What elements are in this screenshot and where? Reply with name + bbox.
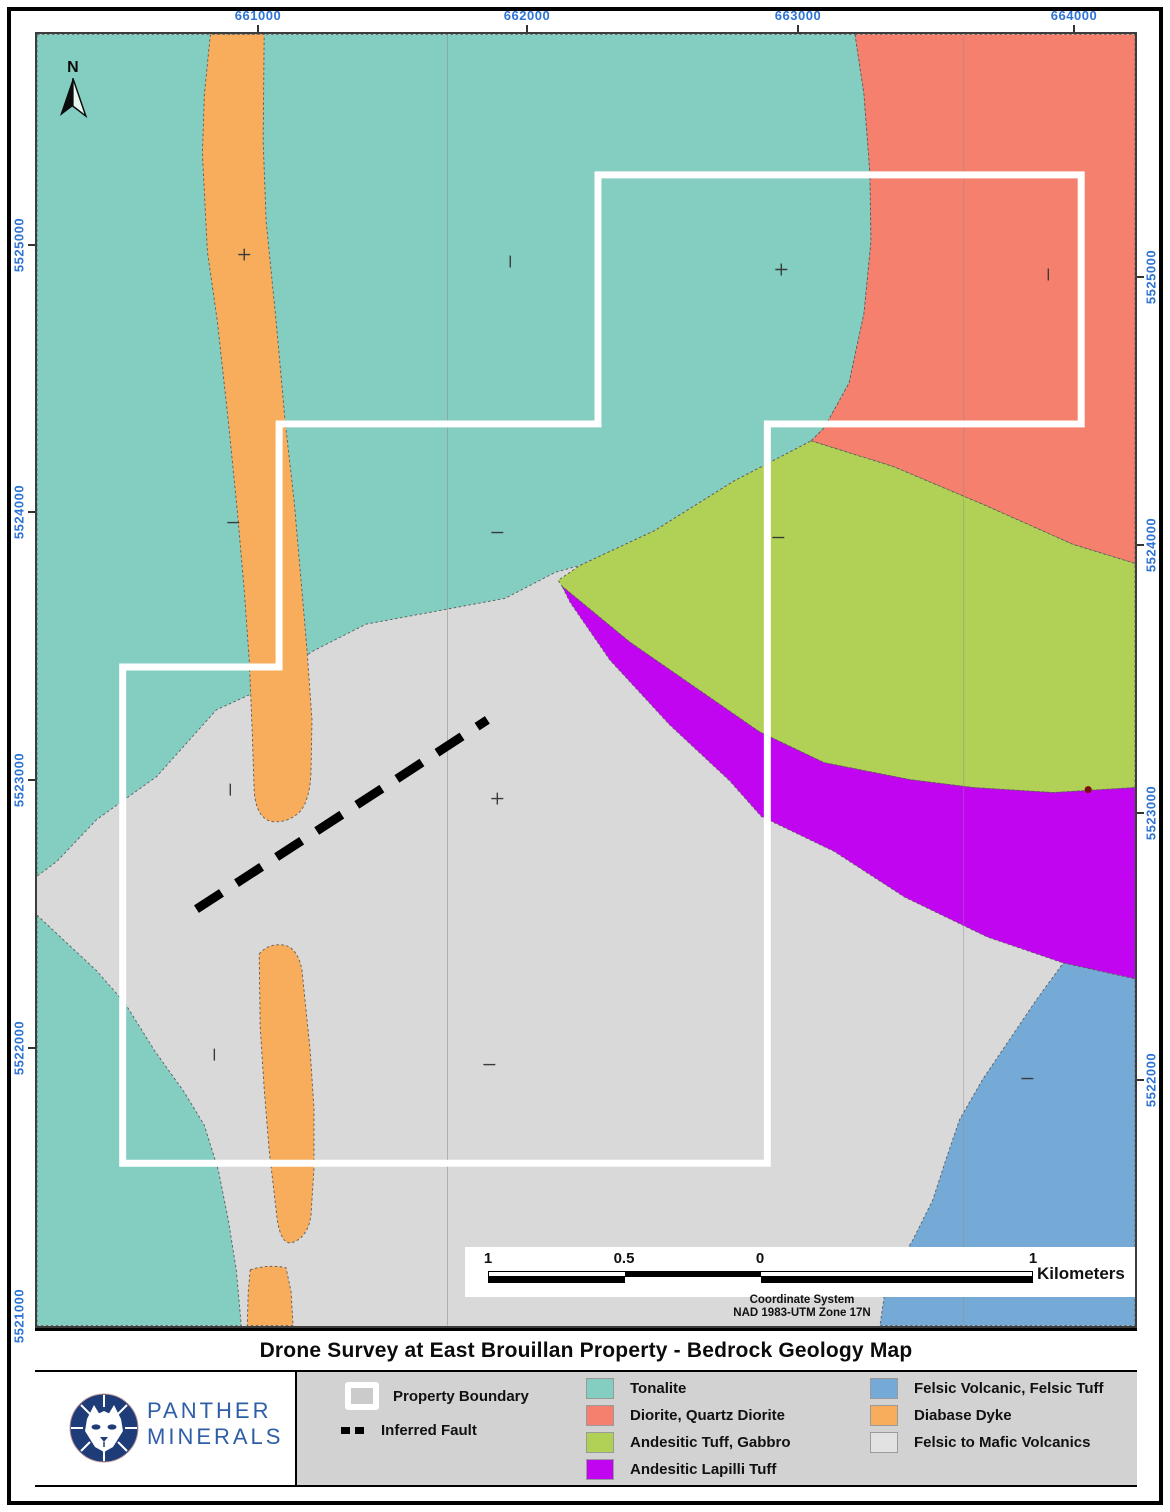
axis-label-top-663000: 663000 — [775, 8, 821, 23]
axis-label-top-661000: 661000 — [235, 8, 281, 23]
inferred-fault-swatch — [341, 1427, 369, 1434]
legend-label: Diorite, Quartz Diorite — [630, 1407, 785, 1424]
axis-label-right-5523000: 5523000 — [1144, 786, 1159, 840]
legend-swatch — [586, 1378, 614, 1399]
title-bar: Drone Survey at East Brouillan Property … — [35, 1328, 1137, 1372]
point-feature-dot — [1085, 786, 1092, 793]
legend-item-property-boundary: Property Boundary — [345, 1382, 529, 1410]
legend-item-diabase-dyke: Diabase Dyke — [870, 1405, 1012, 1426]
legend-label: Tonalite — [630, 1380, 686, 1397]
scale-bar-graphic — [488, 1271, 1033, 1283]
legend-swatch — [586, 1405, 614, 1426]
axis-label-left-5522000: 5522000 — [12, 1021, 27, 1075]
coordinate-system-line2: NAD 1983-UTM Zone 17N — [652, 1307, 952, 1320]
scale-tick-label: 1 — [484, 1250, 492, 1267]
legend-label: Inferred Fault — [381, 1422, 477, 1439]
geology-map-page: 661000 662000 663000 664000 5525000 5524… — [0, 0, 1170, 1512]
axis-tick — [1137, 544, 1144, 546]
legend-swatch — [586, 1432, 614, 1453]
legend-label: Felsic to Mafic Volcanics — [914, 1434, 1090, 1451]
legend-label: Andesitic Lapilli Tuff — [630, 1461, 776, 1478]
north-label: N — [67, 59, 79, 76]
axis-label-left-5523000: 5523000 — [12, 753, 27, 807]
legend-swatch — [870, 1432, 898, 1453]
legend-item-diorite: Diorite, Quartz Diorite — [586, 1405, 785, 1426]
logo-line1: PANTHER — [147, 1398, 283, 1424]
legend-item-lapilli-tuff: Andesitic Lapilli Tuff — [586, 1459, 776, 1480]
logo-wordmark: PANTHER MINERALS — [147, 1398, 283, 1450]
panther-logo-icon — [67, 1391, 141, 1465]
region-diabase-dyke-south — [247, 1266, 293, 1325]
axis-tick — [797, 25, 799, 32]
axis-tick — [1137, 1079, 1144, 1081]
geology-map-svg: N — [37, 34, 1135, 1326]
legend-label: Diabase Dyke — [914, 1407, 1012, 1424]
axis-tick — [28, 1047, 35, 1049]
axis-label-left-5521000: 5521000 — [12, 1289, 27, 1343]
legend-swatch — [870, 1378, 898, 1399]
scale-tick-label: 1 — [1029, 1250, 1037, 1267]
legend-item-felsic-mafic: Felsic to Mafic Volcanics — [870, 1432, 1090, 1453]
axis-tick — [1073, 25, 1075, 32]
scale-bar: 1 0.5 0 1 Kilometers — [465, 1247, 1135, 1297]
legend-item-felsic-volcanic: Felsic Volcanic, Felsic Tuff — [870, 1378, 1104, 1399]
scale-unit-label: Kilometers — [1037, 1264, 1125, 1284]
legend-label: Property Boundary — [393, 1388, 529, 1405]
map-canvas[interactable]: N — [35, 32, 1137, 1328]
axis-tick — [257, 25, 259, 32]
scale-tick-label: 0.5 — [614, 1250, 635, 1267]
coordinate-system-line1: Coordinate System — [652, 1294, 952, 1307]
legend-item-andesitic-tuff: Andesitic Tuff, Gabbro — [586, 1432, 791, 1453]
axis-label-top-662000: 662000 — [504, 8, 550, 23]
legend-swatch — [870, 1405, 898, 1426]
axis-label-left-5525000: 5525000 — [12, 218, 27, 272]
legend-item-inferred-fault: Inferred Fault — [341, 1422, 477, 1439]
map-title: Drone Survey at East Brouillan Property … — [260, 1339, 913, 1363]
axis-tick — [1137, 812, 1144, 814]
axis-label-right-5525000: 5525000 — [1144, 250, 1159, 304]
axis-label-right-5522000: 5522000 — [1144, 1053, 1159, 1107]
legend-swatch — [586, 1459, 614, 1480]
axis-label-left-5524000: 5524000 — [12, 485, 27, 539]
axis-label-right-5524000: 5524000 — [1144, 518, 1159, 572]
legend: PANTHER MINERALS Property Boundary Infer… — [35, 1372, 1137, 1487]
logo-line2: MINERALS — [147, 1424, 283, 1450]
scale-tick-label: 0 — [756, 1250, 764, 1267]
axis-tick — [28, 511, 35, 513]
legend-item-tonalite: Tonalite — [586, 1378, 686, 1399]
axis-tick — [28, 779, 35, 781]
coordinate-system-note: Coordinate System NAD 1983-UTM Zone 17N — [652, 1294, 952, 1320]
legend-label: Andesitic Tuff, Gabbro — [630, 1434, 791, 1451]
axis-tick — [1137, 276, 1144, 278]
axis-tick — [526, 25, 528, 32]
legend-label: Felsic Volcanic, Felsic Tuff — [914, 1380, 1104, 1397]
axis-label-top-664000: 664000 — [1051, 8, 1097, 23]
axis-tick — [28, 244, 35, 246]
company-logo: PANTHER MINERALS — [35, 1372, 297, 1485]
property-boundary-swatch — [345, 1382, 379, 1410]
